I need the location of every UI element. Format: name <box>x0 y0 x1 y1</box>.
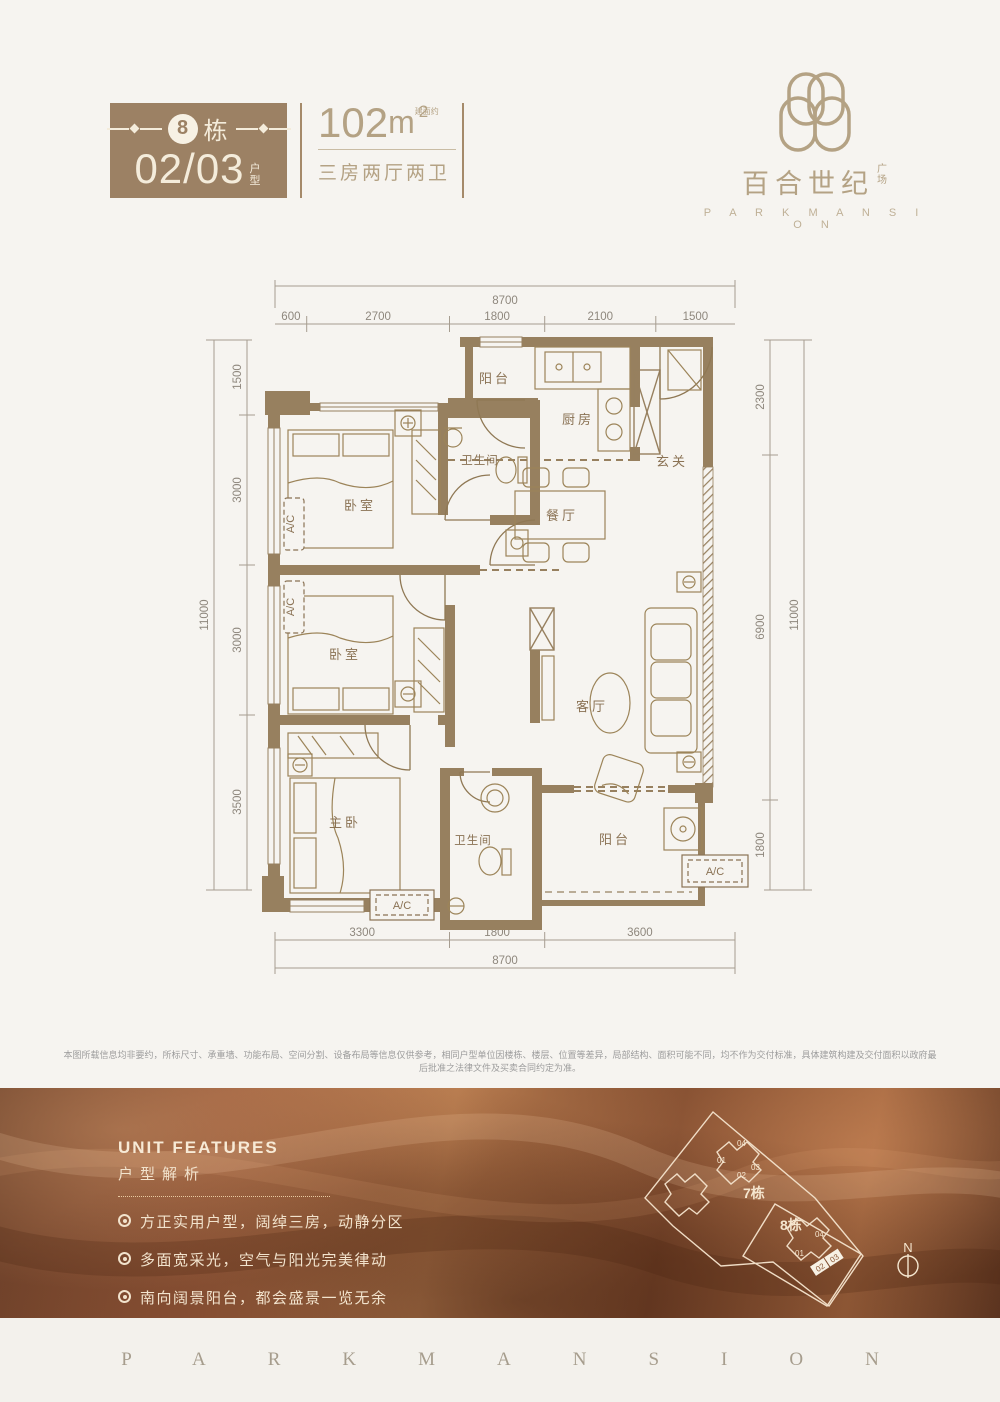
unit7-02: 02 <box>737 1171 746 1180</box>
ac-label: A/C <box>393 900 411 912</box>
features-list: 方正实用户型，阔绰三房，动静分区 多面宽采光，空气与阳光完美律动 南向阔景阳台，… <box>118 1211 437 1318</box>
building7-label: 7栋 <box>743 1185 765 1201</box>
north-compass-icon: N <box>898 1240 918 1278</box>
ac-label: A/C <box>285 598 297 616</box>
badge-unit-row: 02/03 户型 <box>134 148 262 190</box>
svg-text:3600: 3600 <box>627 927 653 939</box>
ac-platforms: A/C A/C A/C A/C <box>284 498 748 920</box>
footer-strip: PARKMANSION <box>0 1318 1000 1402</box>
svg-text:3000: 3000 <box>232 627 244 653</box>
room-bath-bottom: 卫生间 <box>454 833 492 847</box>
svg-text:2700: 2700 <box>365 311 391 323</box>
room-master: 主卧 <box>329 815 361 830</box>
footer-brand: PARKMANSION <box>59 1349 941 1371</box>
unit8-04: 04 <box>815 1230 824 1239</box>
svg-text:1500: 1500 <box>232 364 244 390</box>
room-balcony-top: 阳台 <box>479 371 511 386</box>
badge-building-row: 8 栋 <box>107 111 291 146</box>
room-bedroom-mid: 卧室 <box>329 647 361 662</box>
floor-plan: 8700 600 2700 1800 2100 1500 3300 1800 3… <box>190 278 850 993</box>
svg-text:1800: 1800 <box>484 311 510 323</box>
svg-text:600: 600 <box>281 311 300 323</box>
room-kitchen: 厨房 <box>562 412 594 427</box>
room-dining: 餐厅 <box>546 508 578 523</box>
layout-text: 三房两厅两卫 <box>318 158 458 185</box>
features-divider <box>118 1196 330 1197</box>
header-divider-2 <box>462 103 464 198</box>
badge-left-ornament <box>107 125 162 132</box>
area-exponent: 2 <box>419 103 428 121</box>
svg-text:2100: 2100 <box>588 311 614 323</box>
unit-number: 02/03 <box>134 148 244 190</box>
brand-logo: 百合世纪 广场 P A R K M A N S I O N <box>700 70 930 231</box>
disclaimer-text: 本图所载信息均非要约，所标尺寸、承重墙、功能布局、空间分割、设备布局等信息仅供参… <box>60 1048 940 1074</box>
building8-label: 8栋 <box>780 1217 802 1233</box>
site-plan: 7栋 8栋 01 04 02 03 01 04 02 03 N <box>625 1106 955 1318</box>
dashed-lines <box>448 460 692 892</box>
svg-text:2300: 2300 <box>755 384 767 410</box>
logo-name-suffix: 广场 <box>876 164 888 186</box>
svg-text:8700: 8700 <box>492 295 518 307</box>
room-foyer: 玄关 <box>656 454 688 469</box>
ac-label: A/C <box>706 866 724 878</box>
svg-text:11000: 11000 <box>199 599 211 630</box>
badge-right-ornament <box>236 125 291 132</box>
feature-item: 方正实用户型，阔绰三房，动静分区 <box>118 1211 437 1232</box>
svg-text:N: N <box>903 1240 912 1255</box>
logo-knot-icon <box>769 70 861 154</box>
area-unit: m <box>388 103 415 141</box>
unit-features: UNIT FEATURES 户型解析 方正实用户型，阔绰三房，动静分区 多面宽采… <box>118 1138 437 1318</box>
logo-name-en: P A R K M A N S I O N <box>700 207 930 231</box>
room-bedroom-top: 卧室 <box>344 498 376 513</box>
features-title-en: UNIT FEATURES <box>118 1138 437 1158</box>
room-balcony-bottom: 阳台 <box>599 832 631 847</box>
svg-text:3000: 3000 <box>232 477 244 503</box>
building-suffix: 栋 <box>204 111 230 146</box>
area-block: 102 m 建面约 2 三房两厅两卫 <box>318 103 458 198</box>
svg-text:3300: 3300 <box>349 927 375 939</box>
feature-item: 多面宽采光，空气与阳光完美律动 <box>118 1249 437 1270</box>
unit8-01: 01 <box>795 1249 804 1258</box>
room-bath-top: 卫生间 <box>461 453 499 467</box>
features-band: UNIT FEATURES 户型解析 方正实用户型，阔绰三房，动静分区 多面宽采… <box>0 1088 1000 1318</box>
svg-text:11000: 11000 <box>789 599 801 630</box>
logo-name-cn: 百合世纪 <box>742 162 874 201</box>
unit7-01: 01 <box>717 1156 726 1165</box>
area-rule <box>318 149 456 150</box>
building-number: 8 <box>168 114 198 144</box>
unit-badge: 8 栋 02/03 户型 <box>110 103 287 198</box>
features-title-cn: 户型解析 <box>118 1163 437 1184</box>
header-divider-1 <box>300 103 302 198</box>
unit7-04: 04 <box>737 1139 746 1148</box>
svg-text:3500: 3500 <box>232 789 244 815</box>
ac-label: A/C <box>285 515 297 533</box>
svg-text:6900: 6900 <box>755 614 767 640</box>
unit7-03: 03 <box>751 1163 760 1172</box>
svg-text:1800: 1800 <box>755 832 767 858</box>
room-living: 客厅 <box>576 699 608 714</box>
feature-item: 南向阔景阳台，都会盛景一览无余 <box>118 1287 437 1308</box>
svg-text:1500: 1500 <box>683 311 709 323</box>
unit-suffix: 户型 <box>250 163 263 187</box>
area-value: 102 <box>318 103 388 143</box>
svg-text:8700: 8700 <box>492 955 518 967</box>
